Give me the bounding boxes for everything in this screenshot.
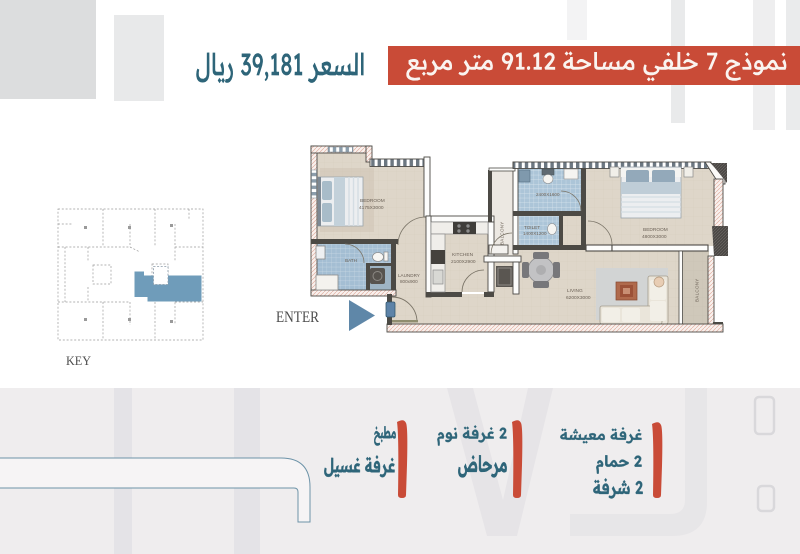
svg-text:2100X2900: 2100X2900	[451, 259, 476, 265]
svg-text:4175X3000: 4175X3000	[359, 205, 384, 211]
svg-text:KITCHEN: KITCHEN	[452, 252, 474, 258]
svg-text:LIVING: LIVING	[567, 288, 583, 294]
svg-text:BALCONY: BALCONY	[695, 278, 700, 302]
svg-text:2400X1600: 2400X1600	[536, 192, 560, 197]
svg-text:6200X3000: 6200X3000	[566, 295, 591, 301]
svg-text:BEDROOM: BEDROOM	[643, 227, 668, 233]
svg-text:BALCONY: BALCONY	[500, 221, 505, 245]
svg-text:LAUNDRY: LAUNDRY	[398, 273, 420, 278]
svg-text:BATH: BATH	[345, 258, 357, 263]
svg-text:1400X1200: 1400X1200	[523, 231, 547, 236]
svg-text:BEDROOM: BEDROOM	[360, 198, 385, 204]
svg-text:ENTER: ENTER	[276, 309, 319, 326]
svg-text:4800X3000: 4800X3000	[642, 234, 667, 240]
svg-text:TOILET: TOILET	[524, 225, 540, 230]
svg-text:KEY: KEY	[66, 353, 92, 368]
svg-text:800x900: 800x900	[400, 279, 418, 284]
